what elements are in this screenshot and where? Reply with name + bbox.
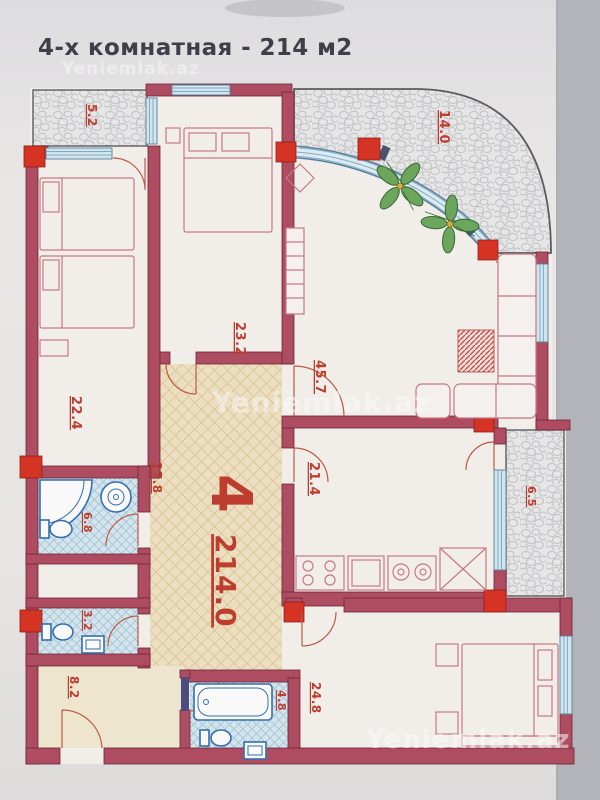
floor-plan-photo: 4-х комнатная - 214 м2 Yeniemlak.az — [0, 0, 600, 800]
floor-plan-canvas: 4-х комнатная - 214 м2 Yeniemlak.az — [0, 0, 600, 800]
photo-shading — [0, 0, 600, 800]
